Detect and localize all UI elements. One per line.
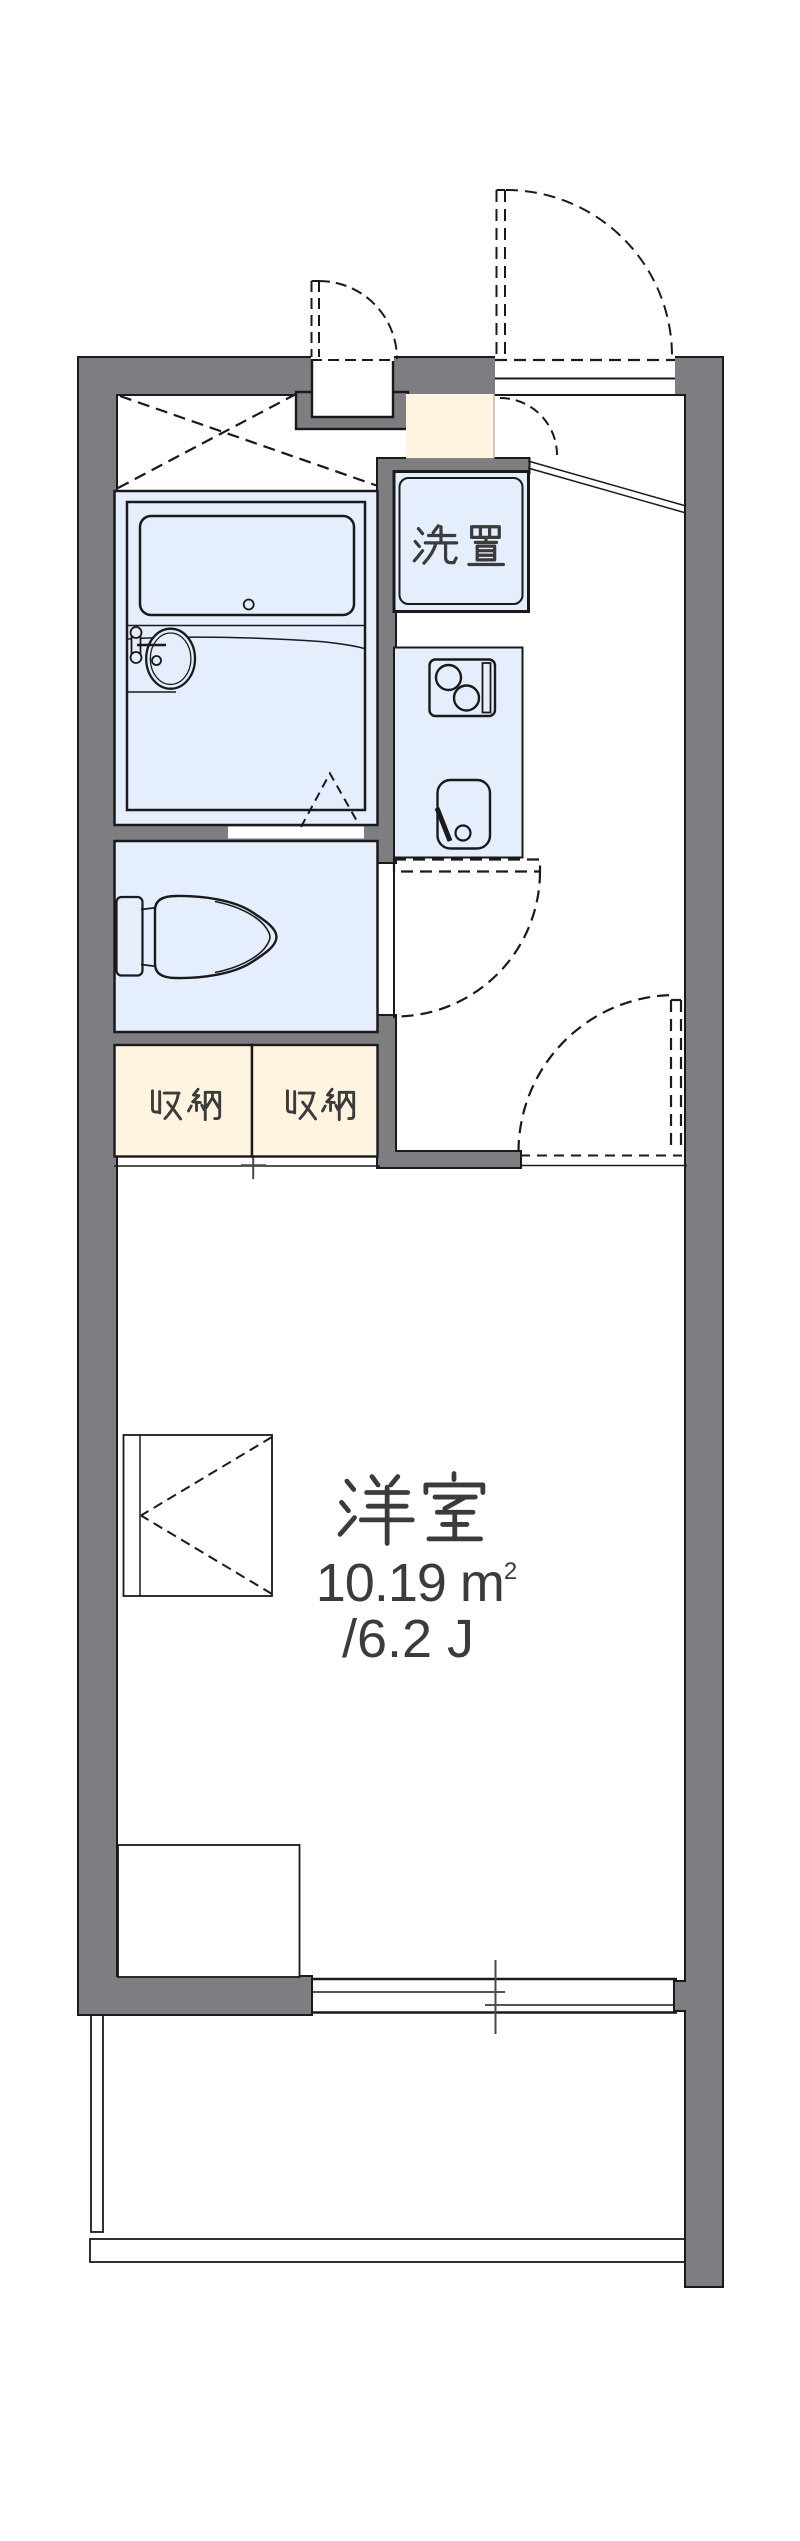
svg-text:10.19 m2: 10.19 m2 xyxy=(316,1553,517,1613)
svg-text:/6.2 J: /6.2 J xyxy=(342,1609,474,1669)
